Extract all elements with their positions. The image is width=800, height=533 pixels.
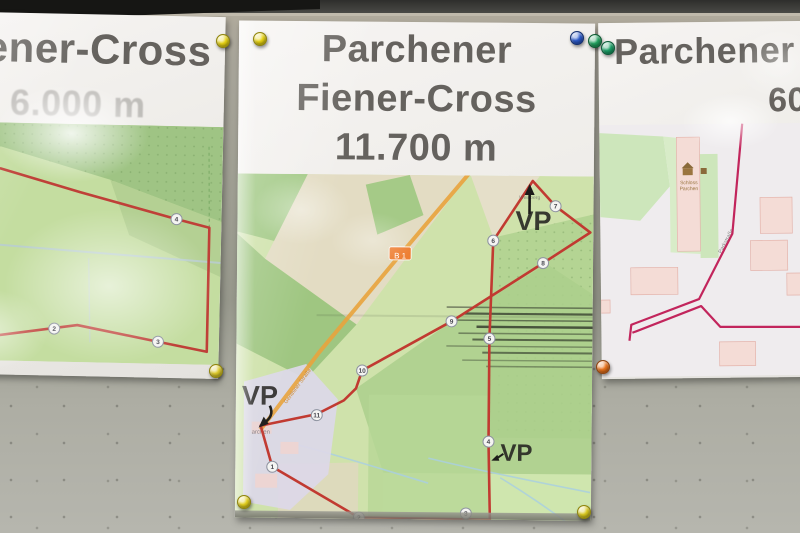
checkpoint-number: 8 (541, 260, 545, 267)
yellow-pin-left-poster-bottom (209, 364, 223, 378)
center-poster-title-line2: Fiener-Cross (238, 69, 594, 121)
checkpoint-number: 2 (52, 326, 56, 333)
orange-pin-right-poster-bottom (596, 360, 610, 374)
left-map-wrap: 234 (0, 121, 223, 365)
checkpoint-number: 4 (175, 217, 179, 224)
checkpoint-number: 5 (488, 336, 492, 343)
yellow-pin-center-bottom-right (577, 505, 591, 519)
road-shield-label: B 1 (394, 252, 407, 261)
checkpoint-number: 4 (487, 439, 491, 446)
left-map: 234 (0, 121, 223, 365)
checkpoint-number: 10 (358, 368, 366, 375)
yellow-pin-left-poster-top (216, 34, 230, 48)
green-pin-center-top-right (588, 34, 602, 48)
right-map-wrap: Schloss Parchen Parkstraße (599, 122, 800, 376)
checkpoint-number: 11 (313, 413, 320, 420)
blue-pin-center-top-right (570, 31, 584, 45)
left-poster-title: Fiener-Cross (0, 11, 226, 74)
center-map-wrap: archen B 1 Genthiner Straße 123456789101… (235, 174, 594, 521)
right-poster-title: Parchener (598, 21, 800, 72)
yellow-pin-center-bottom-left (237, 495, 251, 509)
center-poster-title-line3: 11.700 m (238, 119, 594, 171)
poster-right-course: Parchener 60 Schloss (598, 21, 800, 379)
left-poster-distance: 6.000 m (0, 70, 225, 127)
vp-north-label: VP (515, 206, 551, 236)
teal-pin-right-poster-top (601, 41, 615, 55)
checkpoint-number: 1 (270, 464, 274, 471)
right-poster-distance-partial: 60 (599, 72, 800, 121)
yellow-pin-center-top-left (253, 32, 267, 46)
poster-left-course: Fiener-Cross 6.000 m 234 (0, 11, 226, 379)
vp-west-label: VP (242, 381, 278, 411)
right-map: Schloss Parchen Parkstraße (599, 122, 800, 376)
checkpoint-number: 6 (491, 238, 495, 245)
center-poster-title-line1: Parchener (239, 20, 595, 72)
checkpoint-number: 3 (156, 339, 160, 346)
center-map: archen B 1 Genthiner Straße 123456789101… (235, 174, 594, 521)
checkpoint-number: 7 (554, 204, 558, 211)
checkpoint-number: 9 (450, 319, 454, 326)
poi-label-line2: Parchen (680, 186, 699, 192)
poster-center-course: Parchener Fiener-Cross 11.700 m (235, 20, 595, 520)
vp-south-label: VP (500, 440, 532, 467)
